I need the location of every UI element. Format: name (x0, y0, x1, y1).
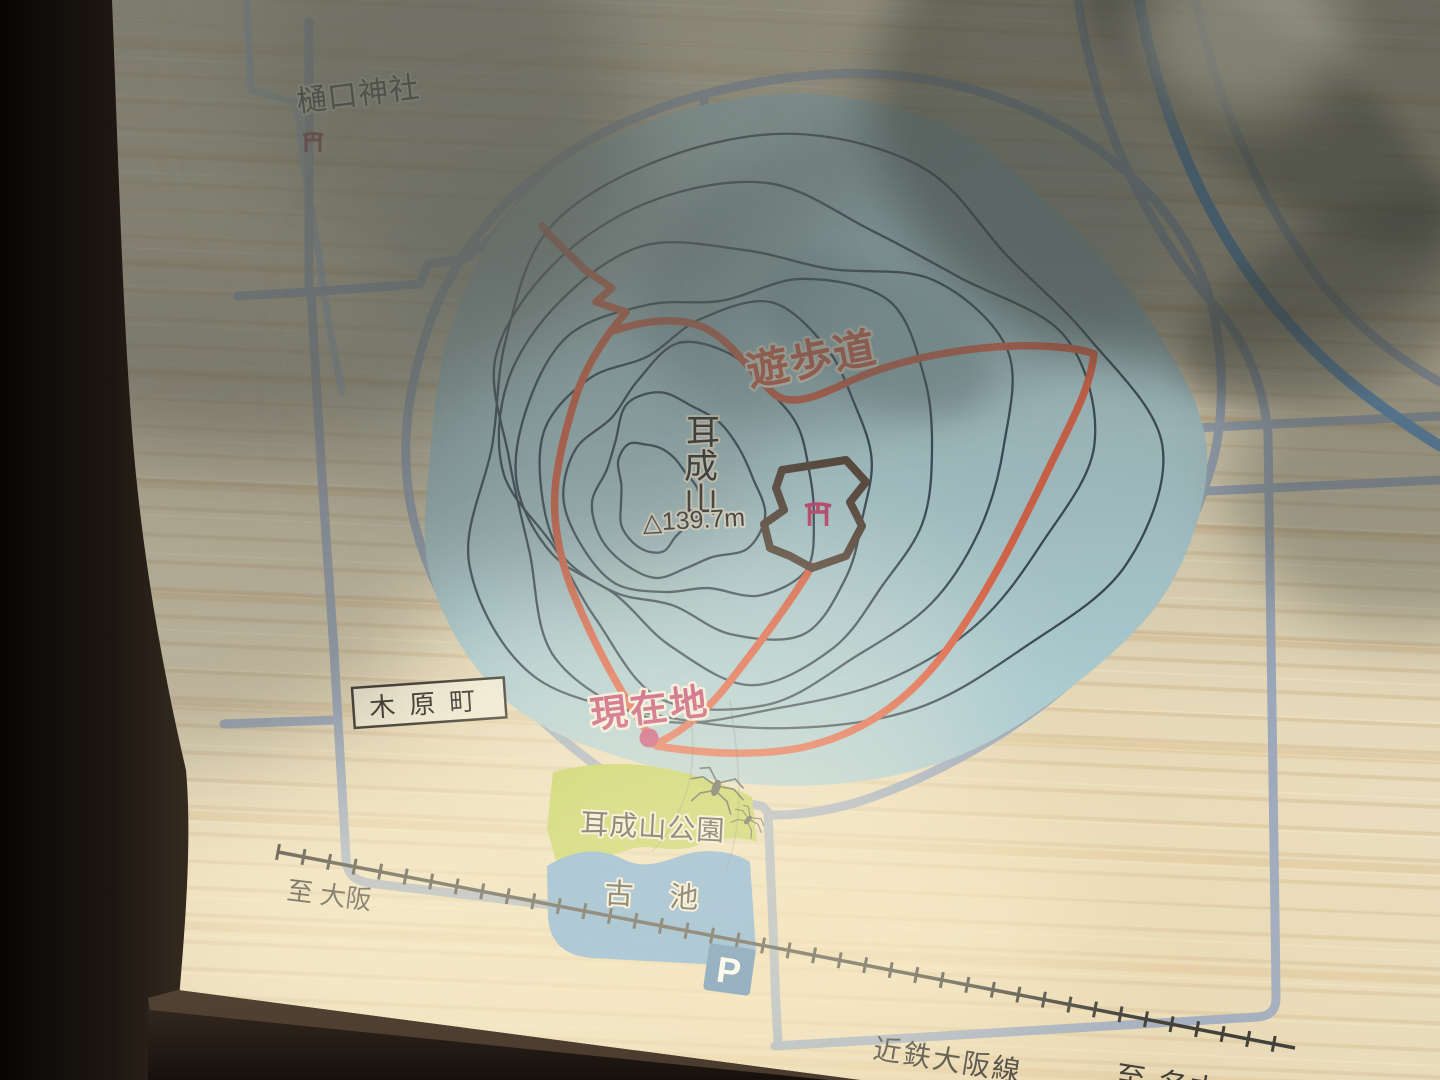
kihara-town-label: 木原町 (352, 677, 506, 728)
railway-tick (787, 943, 790, 959)
railway-tick (1068, 997, 1071, 1013)
railway-name-label: 近鉄大阪線 (871, 1033, 1024, 1080)
current-location-dot (640, 729, 659, 748)
railway-tick (889, 962, 892, 978)
elevation-label: △139.7m (642, 504, 746, 537)
railway-tick (940, 972, 943, 988)
railway-tick (813, 948, 816, 964)
railway-tick (277, 844, 280, 860)
railway-tick (864, 957, 867, 973)
railway-tick (1272, 1036, 1275, 1052)
railway-tick (404, 869, 407, 885)
railway-tick (1119, 1007, 1122, 1023)
railway-tick (838, 952, 841, 968)
signboard-photo: 樋口神社 遊歩道 耳 成 山 △139.7m 現在地 木原町 耳成山公園 古池 … (0, 0, 1440, 1080)
parking-sign: P (703, 943, 756, 996)
trail-map: 樋口神社 遊歩道 耳 成 山 △139.7m 現在地 木原町 耳成山公園 古池 … (0, 0, 1440, 1080)
to-nagoya-label: 至 名古屋 (1113, 1060, 1255, 1080)
stream (247, 0, 342, 392)
railway-tick (302, 849, 305, 865)
railway-tick (966, 977, 969, 993)
railway-tick (1247, 1031, 1250, 1047)
railway-tick (991, 982, 994, 998)
railway-tick (353, 859, 356, 875)
railway-tick (379, 864, 382, 880)
pond-label: 古池 (604, 877, 736, 917)
railway-tick (915, 967, 918, 983)
higuchi-shrine-label: 樋口神社 (295, 71, 422, 119)
railway-tick (1221, 1026, 1224, 1042)
railway-tick (328, 854, 331, 870)
railway-tick (762, 938, 765, 954)
svg-text:耳: 耳 (686, 414, 720, 452)
railway-tick (1042, 992, 1045, 1008)
railway-tick (1017, 987, 1020, 1003)
railway-tick (1094, 1002, 1097, 1018)
svg-text:成: 成 (684, 448, 718, 486)
